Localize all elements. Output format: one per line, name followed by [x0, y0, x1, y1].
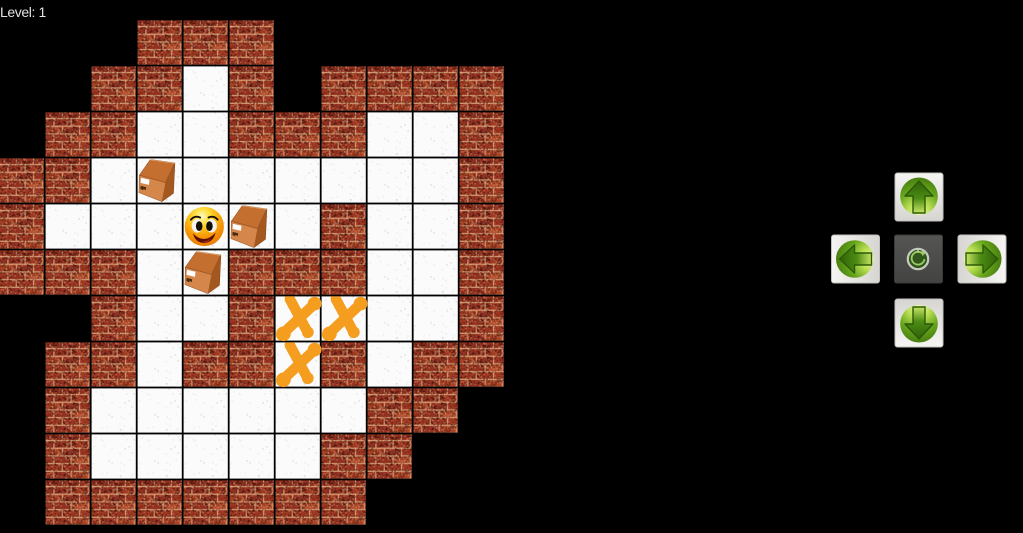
svg-text:Level: 1: Level: 1	[0, 4, 46, 20]
